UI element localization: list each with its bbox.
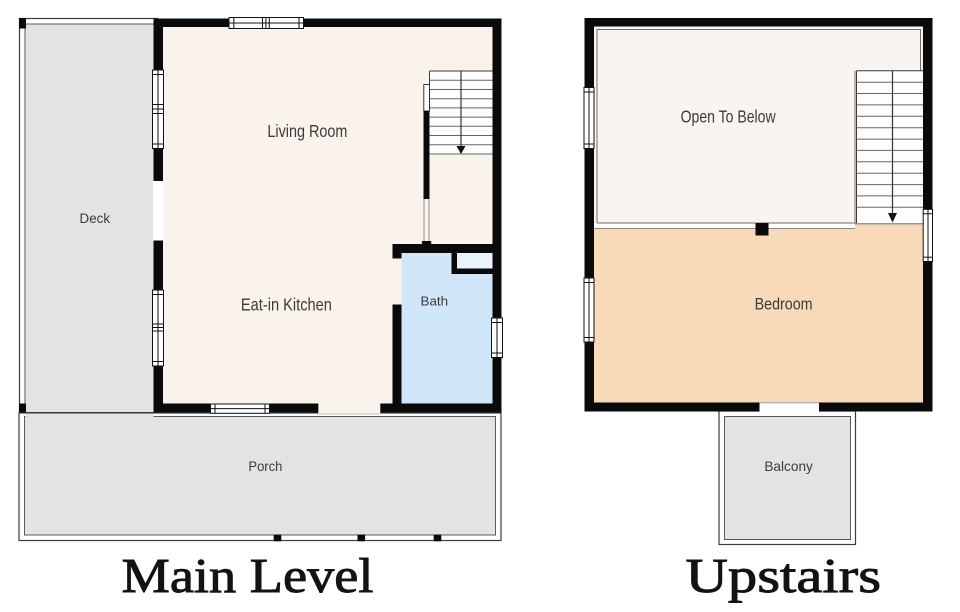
svg-text:Balcony: Balcony: [764, 459, 813, 474]
svg-text:Open To Below: Open To Below: [681, 107, 776, 127]
svg-text:Porch: Porch: [248, 459, 282, 474]
svg-text:Upstairs: Upstairs: [686, 548, 882, 603]
svg-text:Main Level: Main Level: [122, 548, 374, 603]
svg-text:Deck: Deck: [80, 211, 111, 226]
svg-text:Living Room: Living Room: [267, 121, 347, 141]
svg-text:Bath: Bath: [421, 295, 449, 309]
svg-text:Eat-in Kitchen: Eat-in Kitchen: [241, 295, 332, 315]
svg-text:Bedroom: Bedroom: [755, 294, 813, 313]
